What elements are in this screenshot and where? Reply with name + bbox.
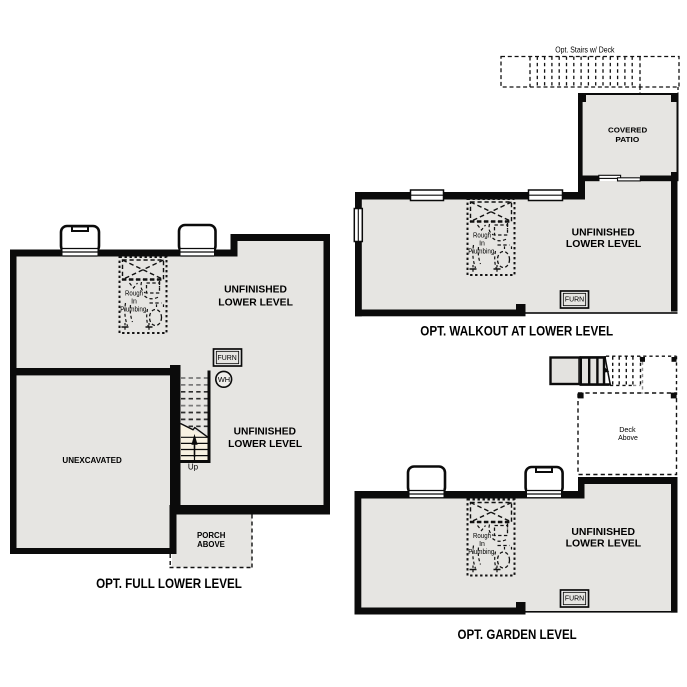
svg-text:LOWER LEVEL: LOWER LEVEL [566, 239, 641, 250]
svg-text:OPT. GARDEN LEVEL: OPT. GARDEN LEVEL [458, 627, 577, 642]
svg-text:WH: WH [218, 375, 230, 384]
svg-text:OPT. WALKOUT AT LOWER LEVEL: OPT. WALKOUT AT LOWER LEVEL [420, 323, 613, 338]
svg-text:ABOVE: ABOVE [197, 540, 225, 549]
svg-text:OPT. FULL LOWER LEVEL: OPT. FULL LOWER LEVEL [96, 576, 242, 591]
svg-text:COVERED: COVERED [608, 126, 648, 135]
svg-text:UNFINISHED: UNFINISHED [572, 228, 635, 239]
svg-text:LOWER LEVEL: LOWER LEVEL [566, 538, 642, 549]
svg-text:UNFINISHED: UNFINISHED [224, 285, 287, 296]
svg-text:UNFINISHED: UNFINISHED [571, 527, 635, 538]
svg-text:Plumbing: Plumbing [120, 307, 146, 314]
svg-text:FURN: FURN [218, 354, 237, 362]
svg-text:Above: Above [618, 433, 638, 442]
svg-text:FURN: FURN [565, 296, 584, 304]
svg-text:Up: Up [188, 463, 199, 472]
svg-text:UNFINISHED: UNFINISHED [234, 427, 296, 438]
svg-text:PATIO: PATIO [615, 135, 639, 144]
svg-text:In: In [131, 298, 137, 305]
svg-text:Opt. Stairs w/ Deck: Opt. Stairs w/ Deck [555, 44, 615, 54]
svg-text:PORCH: PORCH [197, 531, 226, 540]
svg-text:Rough: Rough [125, 291, 143, 298]
svg-text:FURN: FURN [565, 595, 584, 603]
svg-text:LOWER LEVEL: LOWER LEVEL [218, 298, 293, 309]
svg-text:UNEXCAVATED: UNEXCAVATED [62, 455, 121, 465]
svg-text:LOWER LEVEL: LOWER LEVEL [228, 439, 302, 450]
